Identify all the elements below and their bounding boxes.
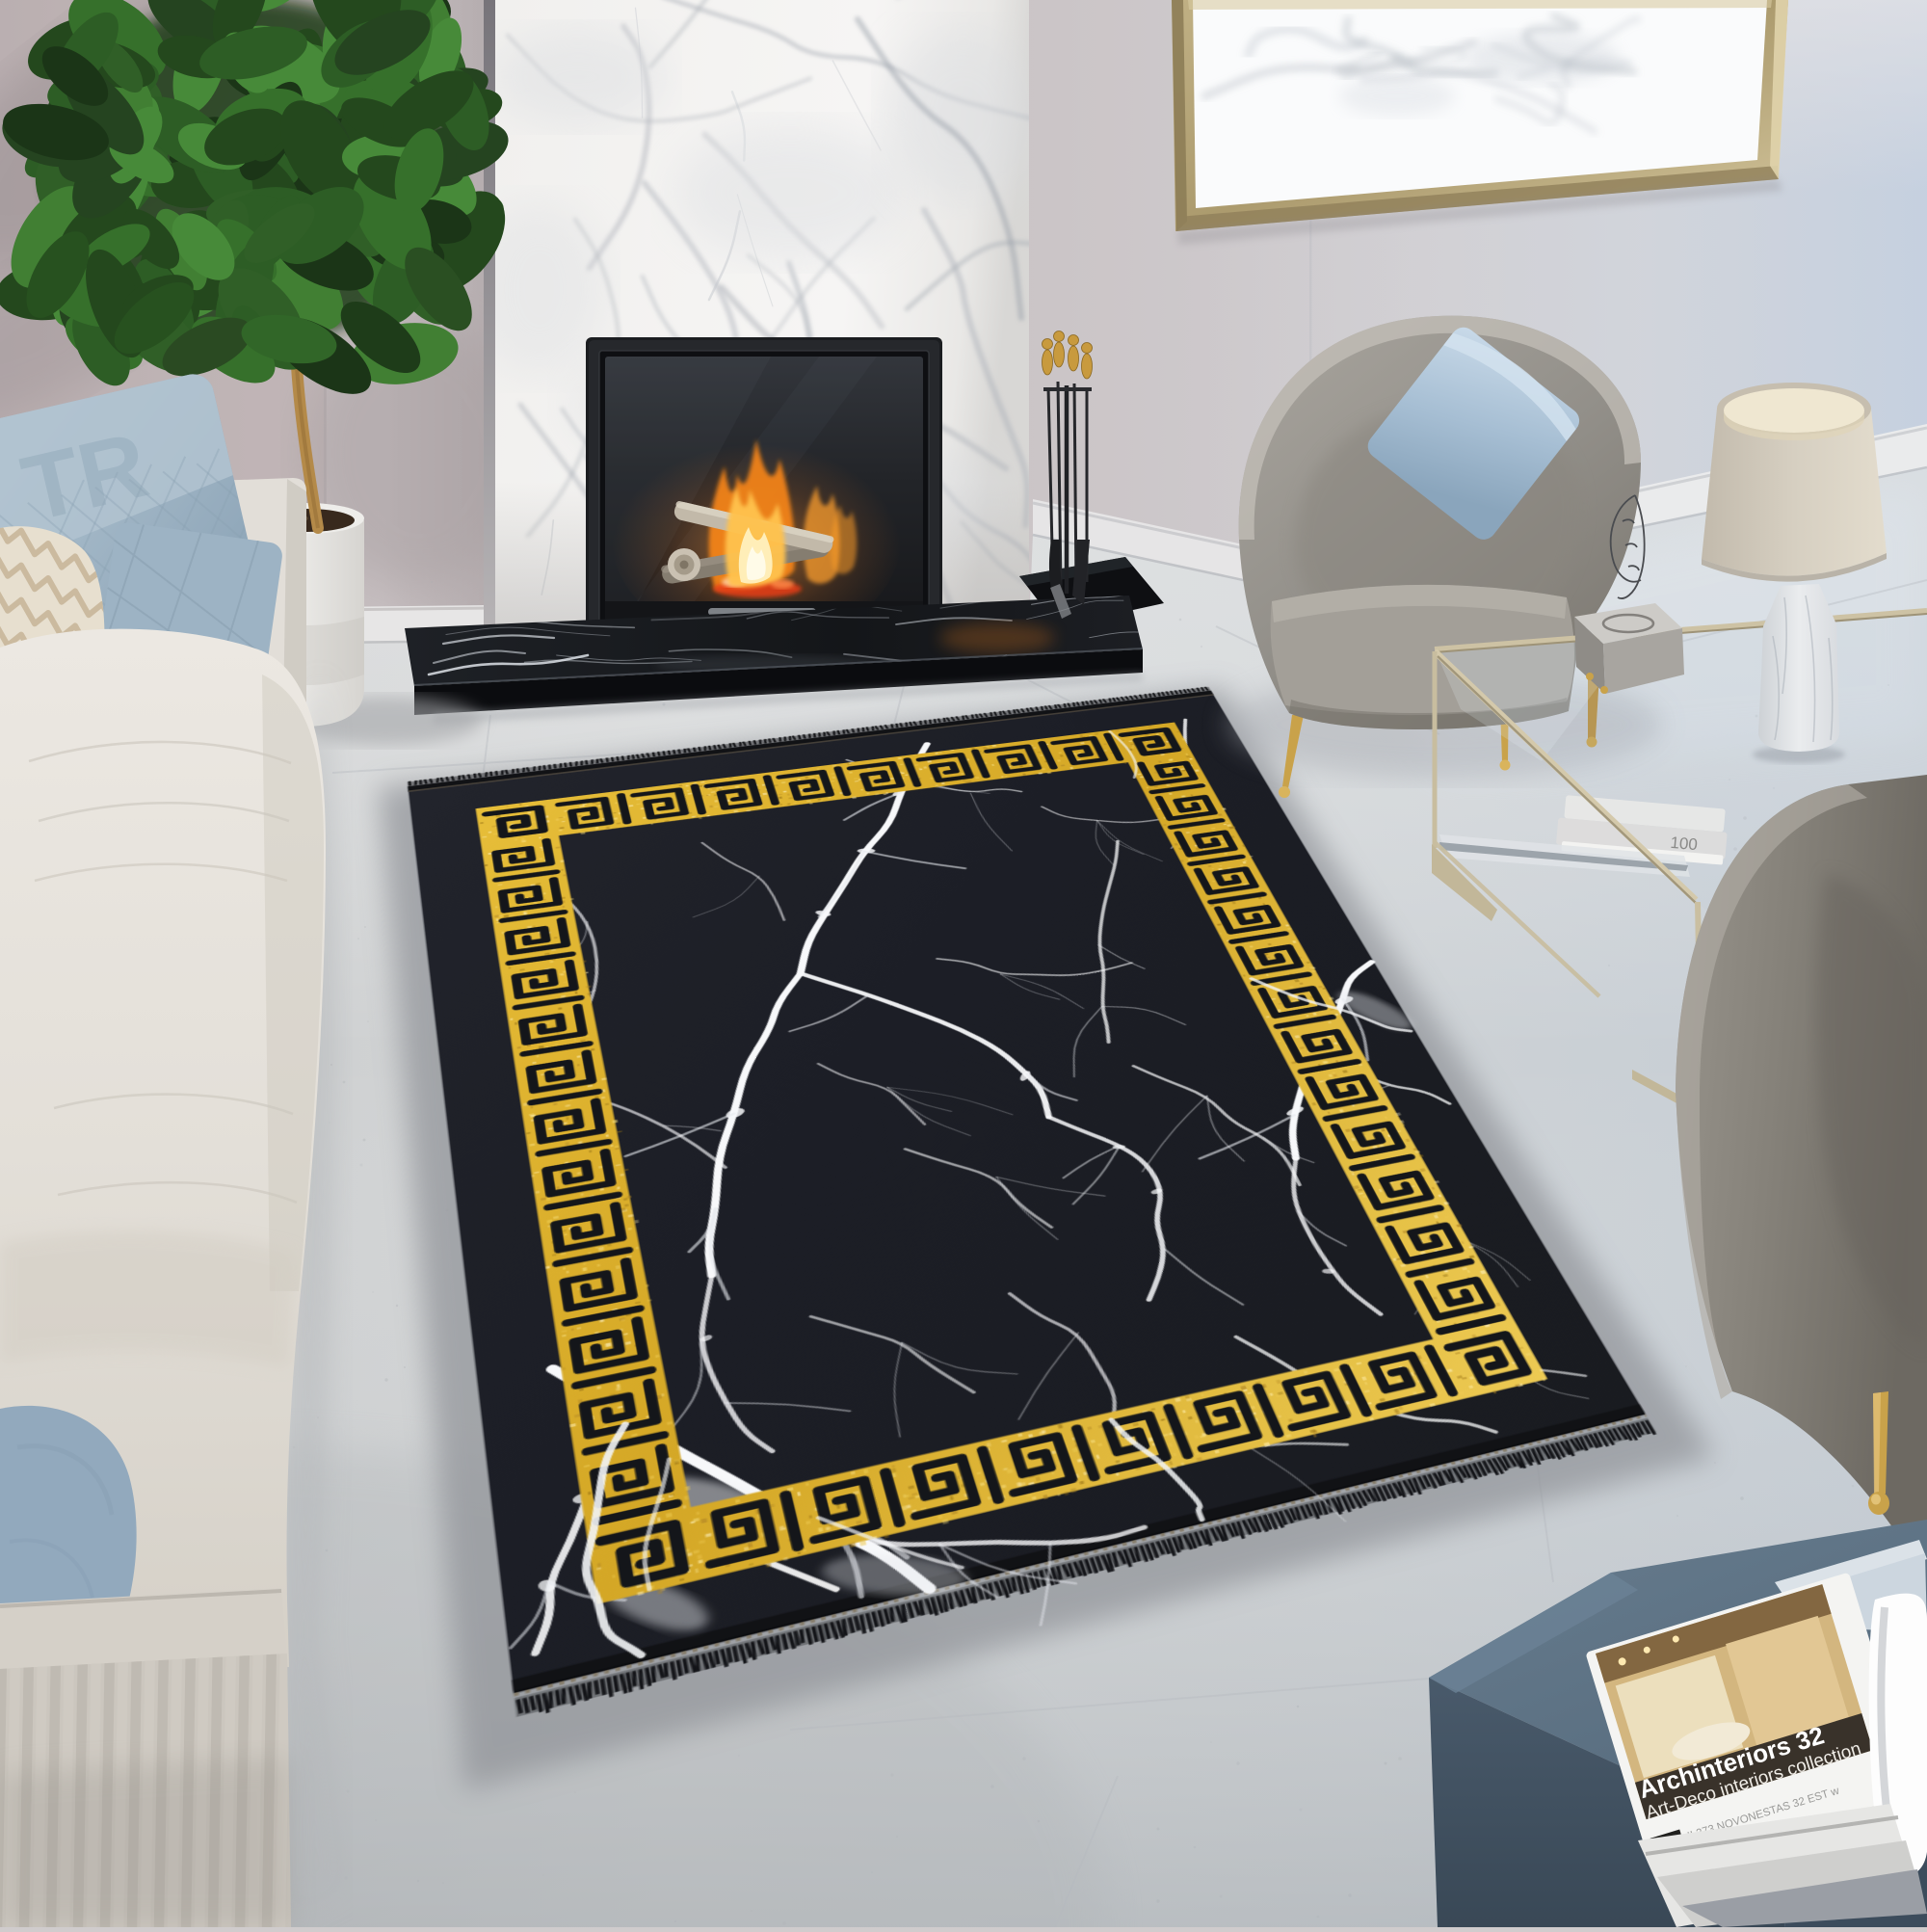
svg-text:100: 100: [1670, 834, 1699, 854]
